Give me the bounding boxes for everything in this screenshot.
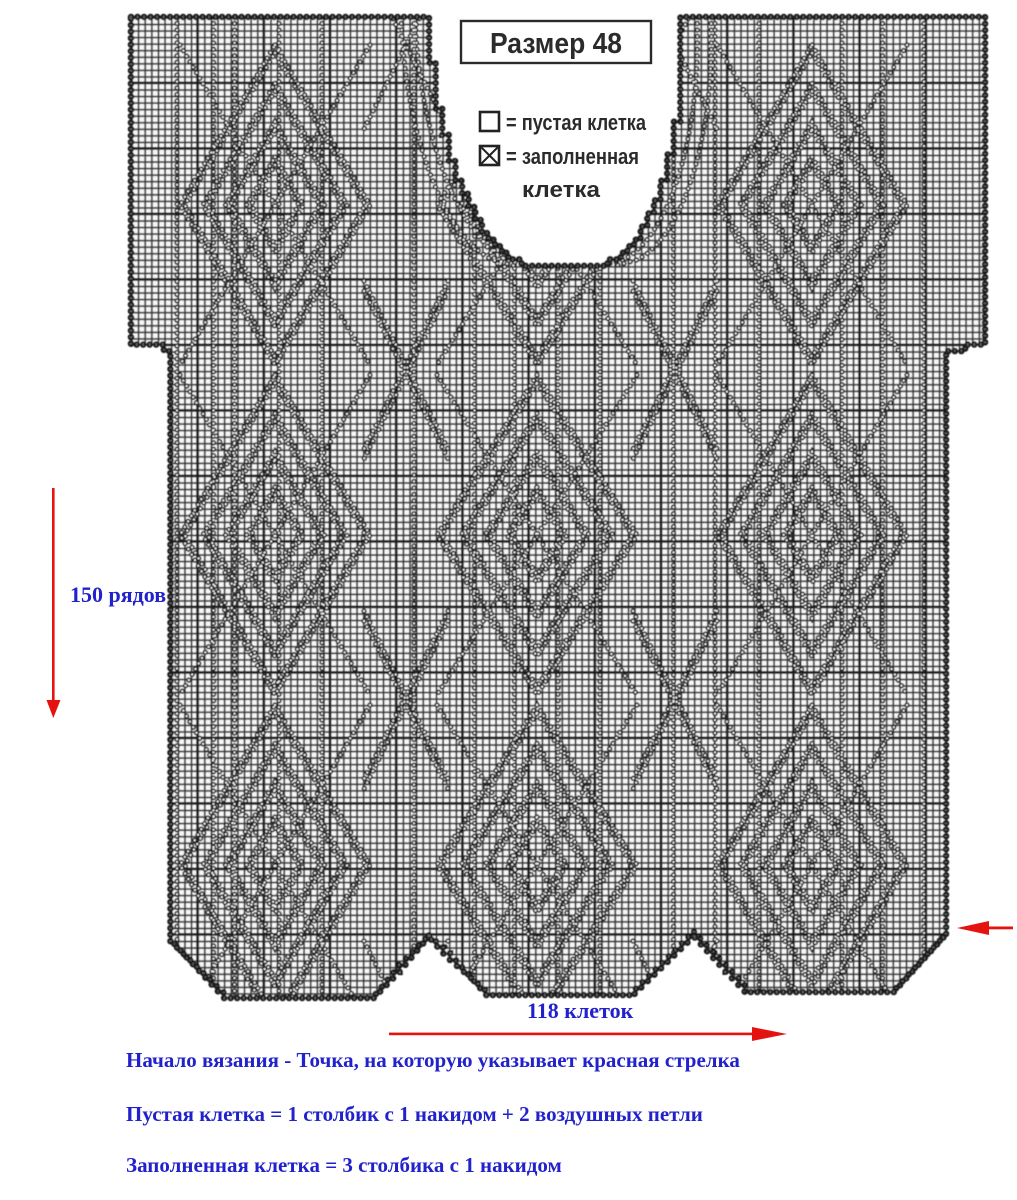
svg-text:Начало вязания - Точка, на кот: Начало вязания - Точка, на которую указы… (126, 1048, 740, 1072)
svg-text:Заполненная клетка = 3 столбик: Заполненная клетка = 3 столбика с 1 наки… (126, 1153, 562, 1177)
svg-text:150 рядов: 150 рядов (70, 582, 166, 607)
svg-text:клетка: клетка (522, 177, 601, 202)
svg-text:= заполненная: = заполненная (506, 144, 639, 169)
svg-text:118 клеток: 118 клеток (527, 998, 634, 1023)
svg-text:Размер 48: Размер 48 (490, 28, 622, 60)
svg-text:Пустая клетка = 1 столбик с 1: Пустая клетка = 1 столбик с 1 накидом + … (126, 1102, 703, 1126)
svg-text:= пустая клетка: = пустая клетка (506, 110, 647, 135)
